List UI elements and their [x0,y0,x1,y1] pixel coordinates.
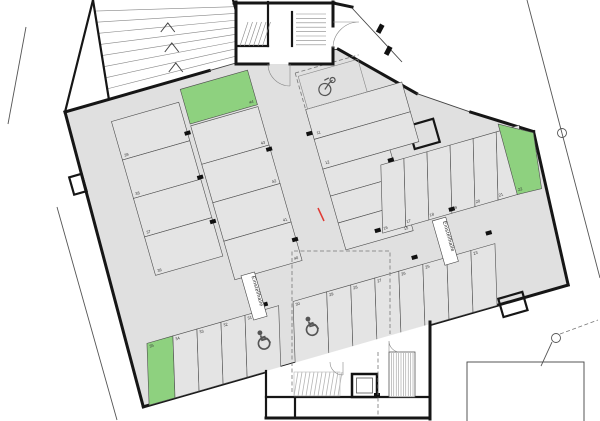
adjacent-structure-outline [467,362,584,421]
core-wall [333,3,352,7]
exterior-wall-line [352,8,402,62]
floor-plan: 4443424140393837361112131415161718192021… [0,0,600,421]
stairs [389,352,415,397]
door-swing [333,22,359,48]
west-wall [65,0,93,112]
marker-leader-dashed [560,320,598,334]
grid-bubble-marker [552,334,561,343]
elevator [352,374,377,397]
floor-plan-canvas: 4443424140393837361112131415161718192021… [0,0,600,421]
boundary-line-west [8,27,26,124]
door-frame [374,393,380,397]
door-frame [376,24,385,34]
